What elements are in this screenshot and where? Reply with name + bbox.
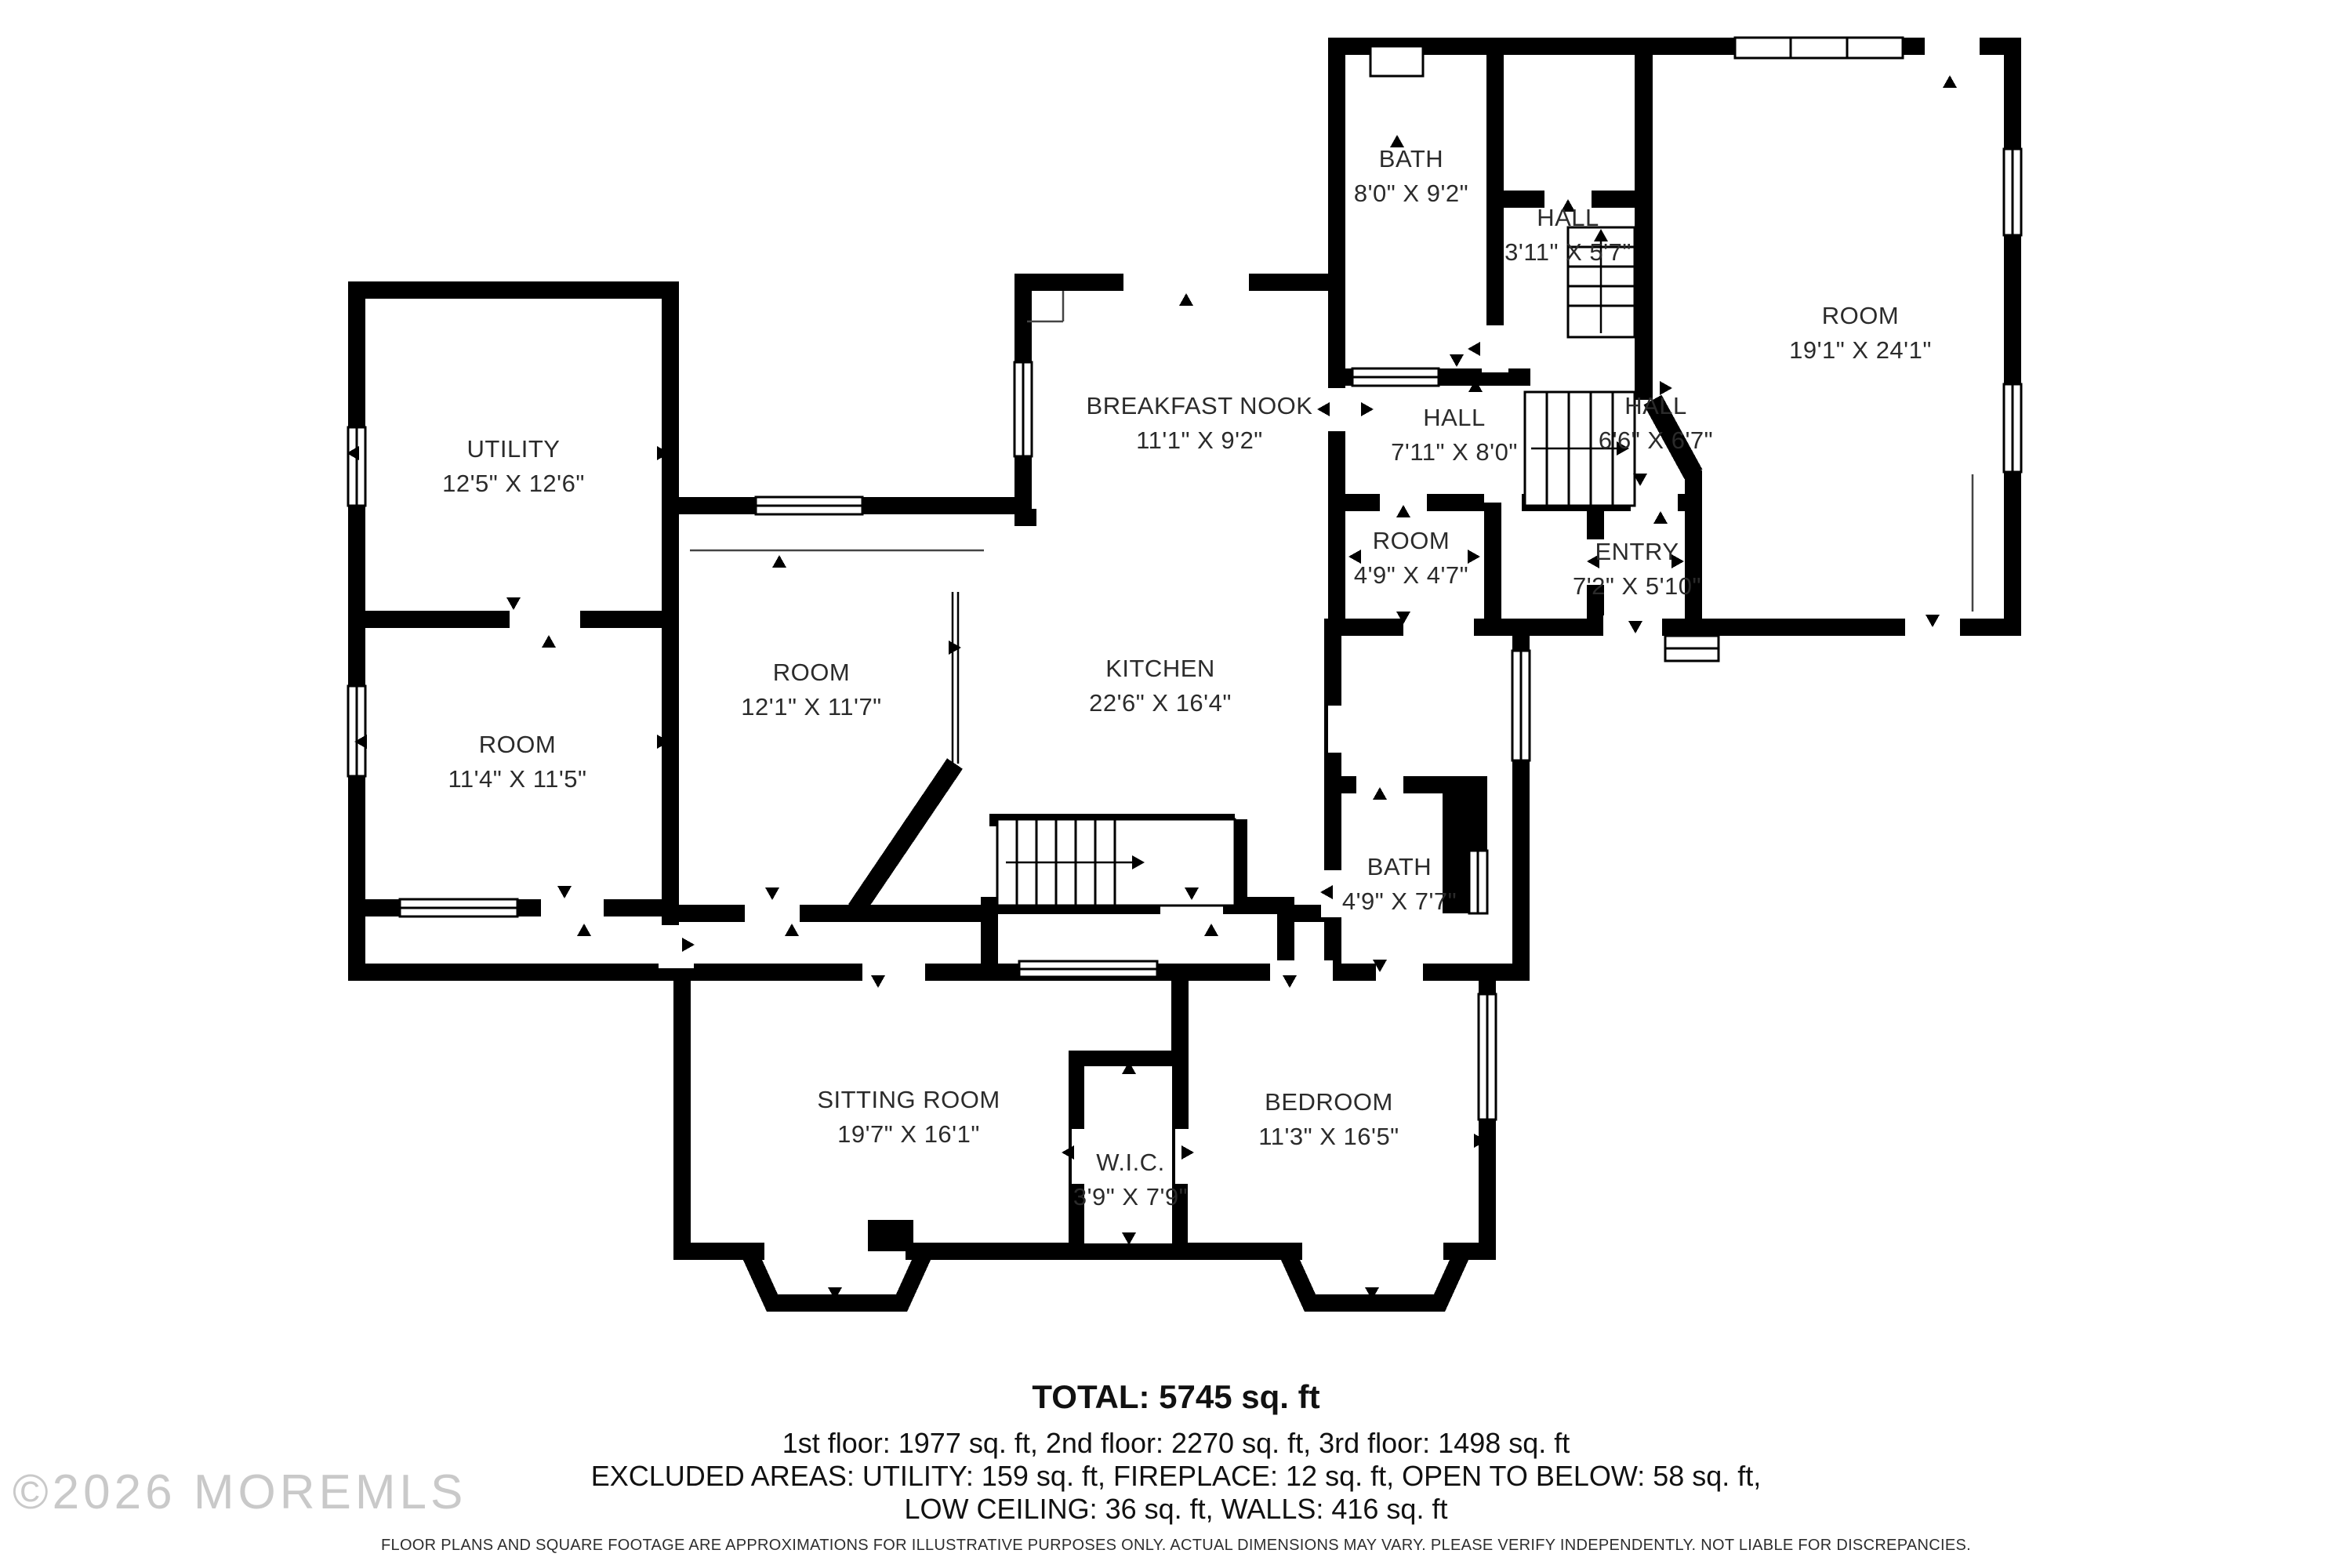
room-name: BEDROOM — [1265, 1088, 1393, 1116]
top-wall-notch — [1370, 46, 1423, 76]
room-dims: 11'1" X 9'2" — [1087, 423, 1313, 458]
room-dims: 19'1" X 24'1" — [1789, 333, 1932, 368]
room-name: W.I.C. — [1096, 1149, 1164, 1176]
room-label-big-room: ROOM 19'1" X 24'1" — [1789, 299, 1932, 368]
room-dims: 4'9" X 4'7" — [1354, 558, 1468, 593]
room-name: HALL — [1624, 392, 1687, 419]
room-dims: 22'6" X 16'4" — [1089, 686, 1232, 720]
room-label-sitting-room: SITTING ROOM 19'7" X 16'1" — [817, 1083, 1000, 1152]
floor-plan-page: { "plan": { "rooms": [ {"name":"BATH","d… — [0, 0, 2352, 1568]
room-dims: 8'0" X 9'2" — [1354, 176, 1468, 211]
room-name: KITCHEN — [1105, 655, 1215, 682]
room-name: BATH — [1367, 853, 1432, 880]
room-dims: 11'4" X 11'5" — [448, 762, 586, 797]
room-dims: 3'9" X 7'9" — [1073, 1180, 1188, 1214]
room-dims: 11'3" X 16'5" — [1258, 1120, 1399, 1154]
room-label-utility: UTILITY 12'5" X 12'6" — [442, 432, 585, 501]
room-label-hall-center: HALL 7'11" X 8'0" — [1391, 401, 1518, 470]
room-dims: 6'6" X 6'7" — [1599, 423, 1713, 458]
room-label-wic: W.I.C. 3'9" X 7'9" — [1073, 1145, 1188, 1214]
porch-steps-icon — [1665, 636, 1719, 661]
room-label-bath-upper: BATH 8'0" X 9'2" — [1354, 142, 1468, 211]
room-dims: 12'1" X 11'7" — [741, 690, 881, 724]
room-label-left-room: ROOM 11'4" X 11'5" — [448, 728, 586, 797]
room-label-hall-upper: HALL 3'11" X 5'7" — [1504, 201, 1632, 270]
room-name: ROOM — [1822, 302, 1899, 329]
room-dims: 19'7" X 16'1" — [817, 1117, 1000, 1152]
room-label-small-room: ROOM 4'9" X 4'7" — [1354, 524, 1468, 593]
room-name: BREAKFAST NOOK — [1087, 392, 1313, 419]
room-name: ROOM — [1373, 527, 1450, 554]
room-dims: 7'2" X 5'10" — [1573, 569, 1701, 604]
room-dims: 7'11" X 8'0" — [1391, 435, 1518, 470]
room-dims: 4'9" X 7'7" — [1342, 884, 1457, 919]
room-name: HALL — [1423, 404, 1486, 431]
room-dims: 12'5" X 12'6" — [442, 466, 585, 501]
mls-watermark: ©2026 MOREMLS — [13, 1465, 466, 1520]
room-name: HALL — [1537, 204, 1599, 231]
room-name: SITTING ROOM — [817, 1086, 1000, 1113]
total-area-text: TOTAL: 5745 sq. ft — [0, 1378, 2352, 1416]
room-name: UTILITY — [467, 435, 561, 463]
floor-areas-text: 1st floor: 1977 sq. ft, 2nd floor: 2270 … — [0, 1427, 2352, 1460]
floor-plan-drawing — [0, 0, 2352, 1568]
disclaimer-text: FLOOR PLANS AND SQUARE FOOTAGE ARE APPRO… — [0, 1537, 2352, 1555]
room-name: ROOM — [773, 659, 850, 686]
stairs-main — [997, 819, 1235, 906]
room-label-entry: ENTRY 7'2" X 5'10" — [1573, 535, 1701, 604]
room-label-bath-lower: BATH 4'9" X 7'7" — [1342, 850, 1457, 919]
room-label-bedroom: BEDROOM 11'3" X 16'5" — [1258, 1085, 1399, 1154]
room-name: BATH — [1379, 145, 1443, 172]
room-label-middle-room: ROOM 12'1" X 11'7" — [741, 655, 881, 724]
room-label-kitchen: KITCHEN 22'6" X 16'4" — [1089, 652, 1232, 720]
room-name: ROOM — [479, 731, 556, 758]
room-label-breakfast-nook: BREAKFAST NOOK 11'1" X 9'2" — [1087, 389, 1313, 458]
room-label-hall-right: HALL 6'6" X 6'7" — [1599, 389, 1713, 458]
room-name: ENTRY — [1595, 538, 1679, 565]
room-dims: 3'11" X 5'7" — [1504, 235, 1632, 270]
